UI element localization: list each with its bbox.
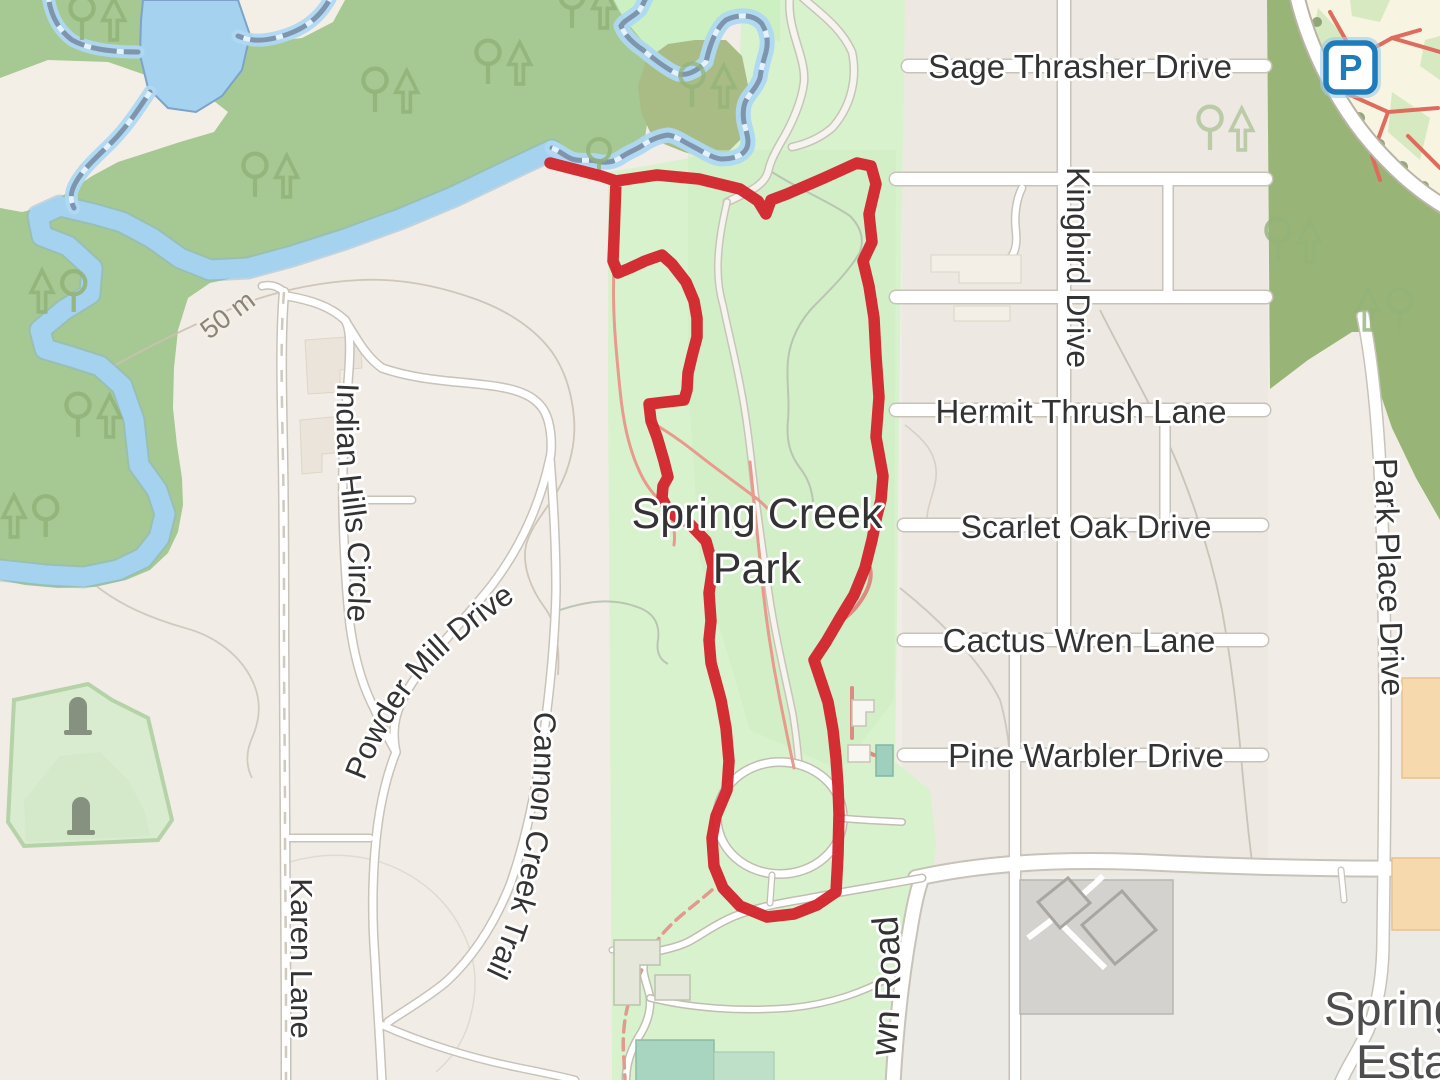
svg-text:Cactus Wren Lane: Cactus Wren Lane bbox=[943, 622, 1216, 659]
svg-text:Karen Lane: Karen Lane bbox=[284, 878, 319, 1038]
svg-text:Spring Creek: Spring Creek bbox=[632, 490, 883, 538]
svg-text:Sage Thrasher Drive: Sage Thrasher Drive bbox=[928, 48, 1232, 85]
svg-text:wn Road: wn Road bbox=[862, 915, 909, 1059]
svg-text:Spring: Spring bbox=[1324, 982, 1440, 1035]
svg-text:Scarlet Oak Drive: Scarlet Oak Drive bbox=[961, 509, 1212, 545]
svg-text:Estat: Estat bbox=[1356, 1035, 1440, 1080]
svg-text:Hermit Thrush Lane: Hermit Thrush Lane bbox=[935, 393, 1226, 430]
svg-text:P: P bbox=[1338, 47, 1362, 88]
svg-text:Park: Park bbox=[713, 545, 802, 593]
svg-text:Park Place Drive: Park Place Drive bbox=[1368, 458, 1411, 697]
svg-text:Pine Warbler Drive: Pine Warbler Drive bbox=[948, 737, 1224, 774]
svg-text:Kingbird Drive: Kingbird Drive bbox=[1060, 167, 1096, 368]
